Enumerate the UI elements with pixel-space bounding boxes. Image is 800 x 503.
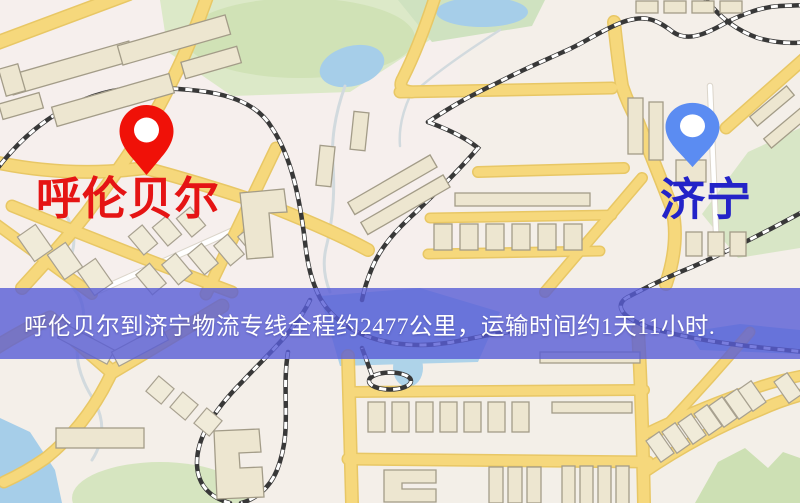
origin-pin[interactable] <box>118 104 175 181</box>
destination-pin-icon <box>664 102 721 168</box>
pin-hole <box>680 114 705 137</box>
route-info-banner: 呼伦贝尔到济宁物流专线全程约2477公里，运输时间约1天11小时. <box>0 288 800 359</box>
map-canvas <box>0 0 800 503</box>
pin-hole <box>134 118 159 143</box>
map[interactable]: 呼伦贝尔 济宁 呼伦贝尔到济宁物流专线全程约2477公里，运输时间约1天11小时… <box>0 0 800 503</box>
route-info-text: 呼伦贝尔到济宁物流专线全程约2477公里，运输时间约1天11小时. <box>24 307 715 341</box>
destination-label: 济宁 <box>660 178 752 223</box>
destination-pin[interactable] <box>664 102 721 173</box>
origin-label: 呼伦贝尔 <box>36 177 220 222</box>
origin-pin-icon <box>118 104 175 176</box>
